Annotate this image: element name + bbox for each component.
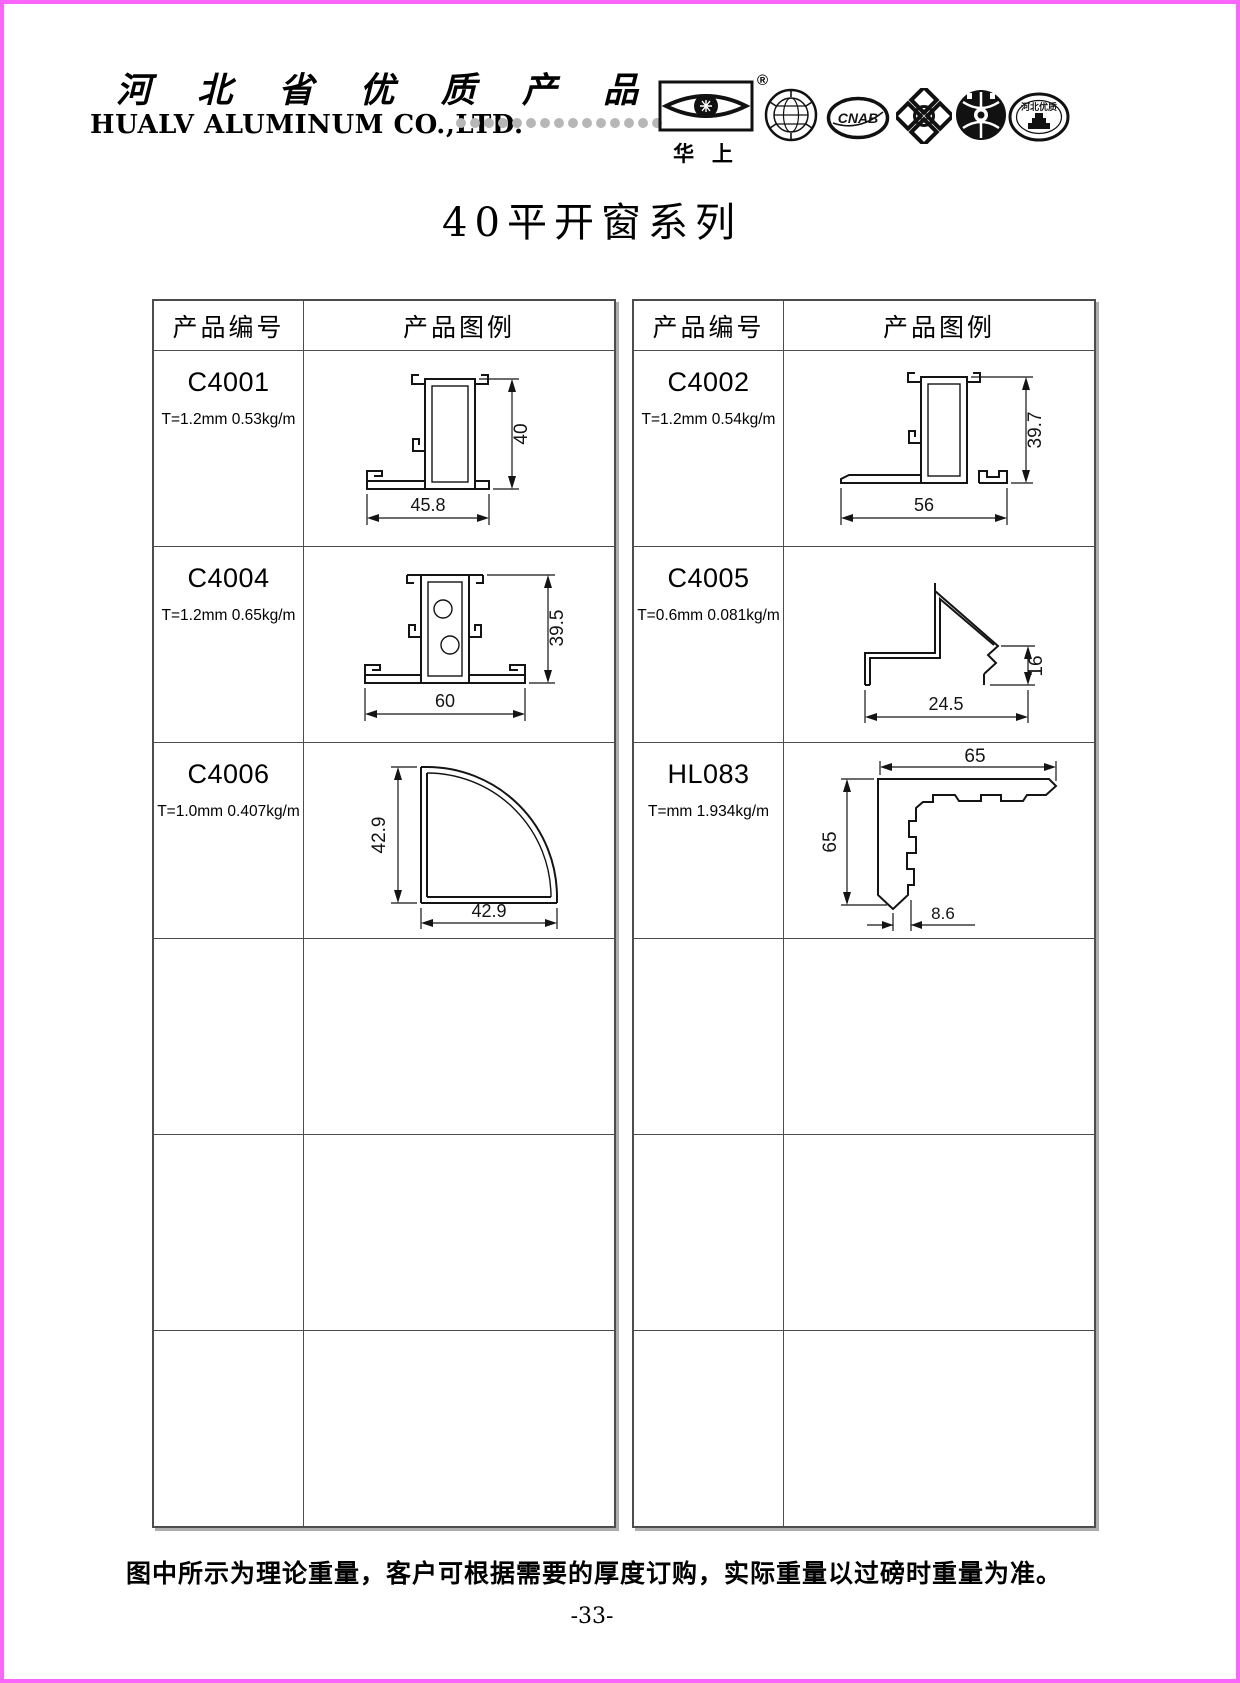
registered-mark: ® (757, 72, 768, 89)
table-header-row: 产品编号 产品图例 (154, 301, 614, 351)
dim-width: 45.8 (410, 495, 445, 515)
product-code: HL083 (634, 759, 783, 790)
header-cn-title: 河 北 省 优 质 产 品 (116, 62, 655, 113)
empty-cell (304, 939, 614, 1134)
dim-height: 65 (820, 831, 841, 852)
empty-cell (304, 1135, 614, 1330)
empty-row (634, 1331, 1094, 1526)
page-title: 40平开窗系列 (4, 190, 1180, 248)
dot (498, 118, 508, 128)
empty-cell (154, 1135, 304, 1330)
product-table-left: 产品编号 产品图例 C4001 T=1.2mm 0.53kg/m (152, 299, 616, 1528)
globe-hands-icon (954, 88, 1008, 142)
product-spec: T=1.2mm 0.53kg/m (154, 411, 303, 429)
empty-row (154, 939, 614, 1135)
profile-drawing-c4001: 40 45.8 (305, 353, 613, 545)
empty-row (154, 1331, 614, 1526)
product-table-right: 产品编号 产品图例 C4002 T=1.2mm 0.54kg/m (632, 299, 1096, 1528)
product-cell-c4001: C4001 T=1.2mm 0.53kg/m (154, 351, 304, 546)
product-spec: T=0.6mm 0.081kg/m (634, 607, 783, 625)
product-code: C4006 (154, 759, 303, 790)
dot (624, 118, 634, 128)
globe-seal-icon (764, 88, 818, 142)
page-number: -33- (4, 1604, 1180, 1629)
product-figure-cell: 16 24.5 (784, 547, 1094, 742)
product-spec: T=1.0mm 0.407kg/m (154, 803, 303, 821)
profile-drawing-c4005: 16 24.5 (785, 549, 1093, 741)
dot (484, 118, 494, 128)
dim-width: 65 (964, 746, 985, 767)
hebei-quality-oval-icon: 河北优质 (1008, 92, 1070, 142)
column-header-code: 产品编号 (154, 301, 304, 350)
dim-height: 42.9 (369, 816, 390, 853)
dot (456, 118, 466, 128)
footer-note: 图中所示为理论重量，客户可根据需要的厚度订购，实际重量以过磅时重量为准。 (4, 1554, 1184, 1590)
dot (610, 118, 620, 128)
hebei-quality-text: 河北优质 (1021, 101, 1057, 112)
dot (526, 118, 536, 128)
empty-cell (154, 939, 304, 1134)
empty-cell (784, 1135, 1094, 1330)
dot (470, 118, 480, 128)
product-figure-cell: 42.9 42.9 (304, 743, 614, 938)
dim-height: 39.7 (1025, 411, 1046, 448)
hua-shang-eye-icon (658, 80, 754, 132)
product-figure-cell: 40 45.8 (304, 351, 614, 546)
empty-cell (784, 939, 1094, 1134)
profile-drawing-c4006: 42.9 42.9 (305, 745, 613, 937)
empty-cell (154, 1331, 304, 1526)
product-code: C4001 (154, 367, 303, 398)
product-spec: T=mm 1.934kg/m (634, 803, 783, 821)
product-cell-c4005: C4005 T=0.6mm 0.081kg/m (634, 547, 784, 742)
dot (512, 118, 522, 128)
dim-height: 40 (511, 423, 532, 444)
product-spec: T=1.2mm 0.65kg/m (154, 607, 303, 625)
product-cell-c4004: C4004 T=1.2mm 0.65kg/m (154, 547, 304, 742)
table-row: C4001 T=1.2mm 0.53kg/m (154, 351, 614, 547)
column-header-code: 产品编号 (634, 301, 784, 350)
empty-cell (634, 1135, 784, 1330)
quatrefoil-q-icon: Q (896, 88, 952, 144)
table-header-row: 产品编号 产品图例 (634, 301, 1094, 351)
dot (568, 118, 578, 128)
profile-drawing-hl083: 65 65 8.6 (785, 745, 1093, 937)
dot (638, 118, 648, 128)
dim-width: 56 (914, 495, 934, 515)
product-code: C4004 (154, 563, 303, 594)
empty-row (154, 1135, 614, 1331)
dim-thickness: 8.6 (931, 904, 955, 923)
empty-cell (784, 1331, 1094, 1526)
product-cell-hl083: HL083 T=mm 1.934kg/m (634, 743, 784, 938)
dot (554, 118, 564, 128)
quatrefoil-q-text: Q (919, 110, 928, 124)
dots-row (456, 118, 662, 128)
product-cell-c4006: C4006 T=1.0mm 0.407kg/m (154, 743, 304, 938)
dim-width: 42.9 (471, 901, 506, 921)
cnab-oval-icon: CNAB (826, 96, 890, 140)
table-row: C4004 T=1.2mm 0.65kg/m (154, 547, 614, 743)
product-code: C4005 (634, 563, 783, 594)
brand-name: 华 上 (656, 138, 756, 168)
cnab-text: CNAB (838, 110, 878, 126)
table-row: C4006 T=1.0mm 0.407kg/m (154, 743, 614, 939)
dim-width: 24.5 (928, 694, 963, 714)
column-header-figure: 产品图例 (784, 301, 1094, 350)
dim-width: 60 (435, 691, 455, 711)
dim-height: 16 (1026, 655, 1047, 676)
product-cell-c4002: C4002 T=1.2mm 0.54kg/m (634, 351, 784, 546)
column-header-figure: 产品图例 (304, 301, 614, 350)
pagoda-silhouette (1028, 113, 1050, 129)
empty-cell (304, 1331, 614, 1526)
dot (596, 118, 606, 128)
empty-row (634, 1135, 1094, 1331)
product-figure-cell: 39.5 60 (304, 547, 614, 742)
product-figure-cell: 39.7 56 (784, 351, 1094, 546)
catalog-page: 河 北 省 优 质 产 品 HUALV ALUMINUM CO.,LTD. ® … (0, 0, 1240, 1683)
table-row: C4002 T=1.2mm 0.54kg/m (634, 351, 1094, 547)
product-code: C4002 (634, 367, 783, 398)
dot (582, 118, 592, 128)
product-spec: T=1.2mm 0.54kg/m (634, 411, 783, 429)
empty-cell (634, 939, 784, 1134)
table-row: HL083 T=mm 1.934kg/m (634, 743, 1094, 939)
dot (540, 118, 550, 128)
empty-row (634, 939, 1094, 1135)
product-figure-cell: 65 65 8.6 (784, 743, 1094, 938)
profile-drawing-c4004: 39.5 60 (305, 549, 613, 741)
brand-logo: ® 华 上 (656, 80, 756, 168)
dim-height: 39.5 (547, 609, 568, 646)
profile-drawing-c4002: 39.7 56 (785, 353, 1093, 545)
table-row: C4005 T=0.6mm 0.081kg/m (634, 547, 1094, 743)
empty-cell (634, 1331, 784, 1526)
